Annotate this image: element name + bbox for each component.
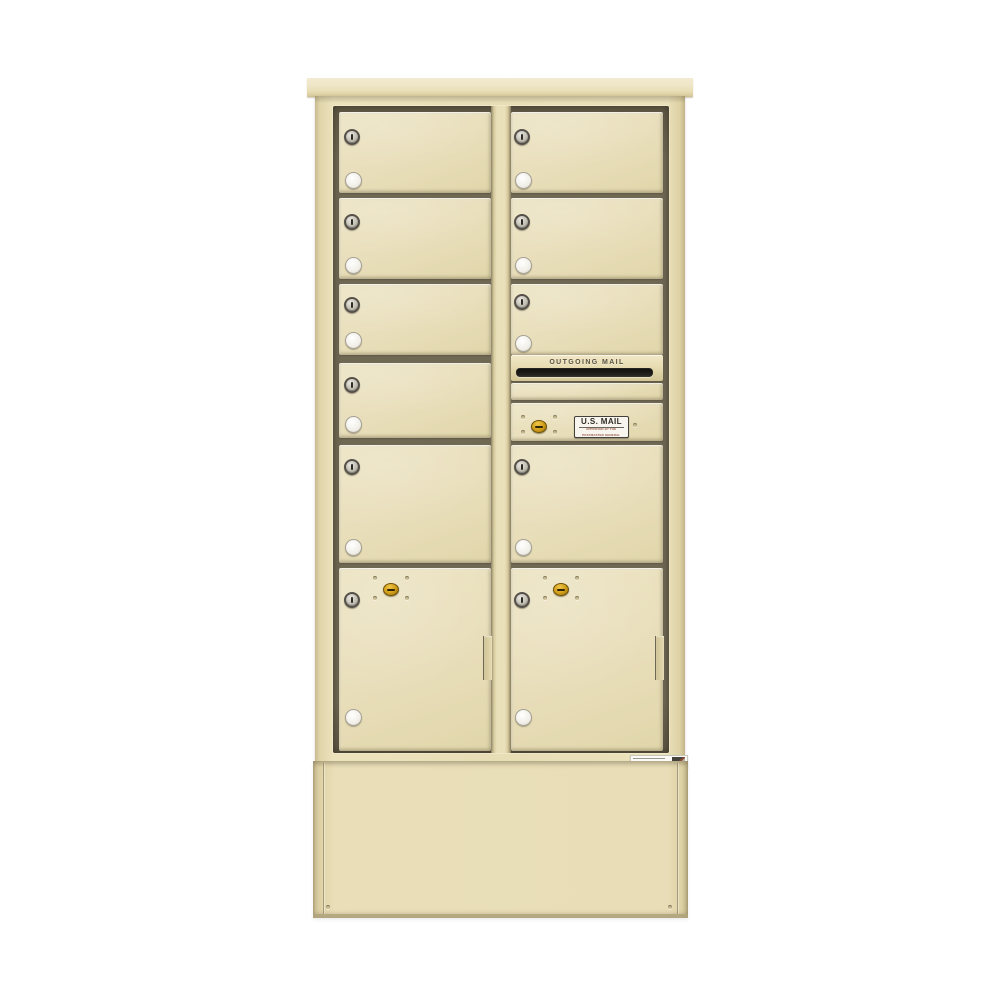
- door-number-disc: [345, 709, 362, 726]
- tenant-door-7: [511, 198, 663, 279]
- us-mail-decal-sub1: APPROVED BY THE: [586, 428, 616, 431]
- door-number-disc: [515, 539, 532, 556]
- door-lock: [514, 294, 530, 310]
- door-number-disc: [515, 335, 532, 352]
- door-number-disc: [515, 172, 532, 189]
- screw: [575, 576, 579, 580]
- door-number-disc: [345, 257, 362, 274]
- parcel-locker-door-right: [511, 568, 663, 751]
- parcel-locker-door-left: [339, 568, 491, 751]
- door-lock: [514, 214, 530, 230]
- tenant-door-6: [511, 112, 663, 193]
- parcel-brass-lock: [553, 583, 569, 596]
- screw: [405, 596, 409, 600]
- screw: [373, 576, 377, 580]
- door-number-disc: [515, 709, 532, 726]
- master-brass-lock: [531, 420, 547, 433]
- door-lock: [344, 377, 360, 393]
- door-number-disc: [515, 257, 532, 274]
- us-mail-decal-sub2: POSTMASTER GENERAL: [582, 434, 620, 437]
- rivet-hole: [521, 415, 525, 419]
- pedestal-bottom-edge: [313, 914, 688, 918]
- pedestal-seam: [323, 763, 324, 914]
- tenant-door-3: [339, 284, 491, 355]
- screw: [543, 576, 547, 580]
- door-lock: [514, 459, 530, 475]
- tenant-door-8: [511, 284, 663, 355]
- door-number-disc: [345, 416, 362, 433]
- tenant-door-9: [511, 445, 663, 563]
- blank-panel: [511, 383, 663, 400]
- outgoing-mail-label: OUTGOING MAIL: [511, 359, 663, 366]
- rivet-hole: [553, 430, 557, 434]
- us-mail-decal-title: U.S. MAIL: [579, 417, 624, 428]
- product-photo: OUTGOING MAIL U.S. MAIL APPROVED BY THE …: [0, 0, 1000, 1000]
- screw: [373, 596, 377, 600]
- rivet-hole: [553, 415, 557, 419]
- pedestal-screw: [326, 905, 330, 909]
- door-lock: [514, 129, 530, 145]
- column-mullion: [491, 106, 511, 753]
- door-lock: [344, 129, 360, 145]
- door-lock: [344, 592, 360, 608]
- door-lock: [514, 592, 530, 608]
- pedestal-screw: [668, 905, 672, 909]
- parcel-handle-notch: [483, 636, 492, 680]
- door-lock: [344, 459, 360, 475]
- rivet-hole: [633, 423, 637, 427]
- door-number-disc: [345, 172, 362, 189]
- door-lock: [344, 214, 360, 230]
- parcel-handle-notch: [655, 636, 664, 680]
- tenant-door-4: [339, 363, 491, 438]
- door-number-disc: [345, 332, 362, 349]
- screw: [405, 576, 409, 580]
- outgoing-mail-slot: [516, 368, 653, 377]
- screw: [543, 596, 547, 600]
- us-mail-decal: U.S. MAIL APPROVED BY THE POSTMASTER GEN…: [574, 416, 629, 438]
- door-lock: [344, 297, 360, 313]
- pedestal-seam: [677, 763, 678, 914]
- screw: [575, 596, 579, 600]
- depot-pedestal: [313, 761, 688, 918]
- parcel-brass-lock: [383, 583, 399, 596]
- cabinet-top-cap: [307, 78, 693, 97]
- rivet-hole: [521, 430, 525, 434]
- door-number-disc: [345, 539, 362, 556]
- outgoing-mail-hood: OUTGOING MAIL: [511, 355, 663, 381]
